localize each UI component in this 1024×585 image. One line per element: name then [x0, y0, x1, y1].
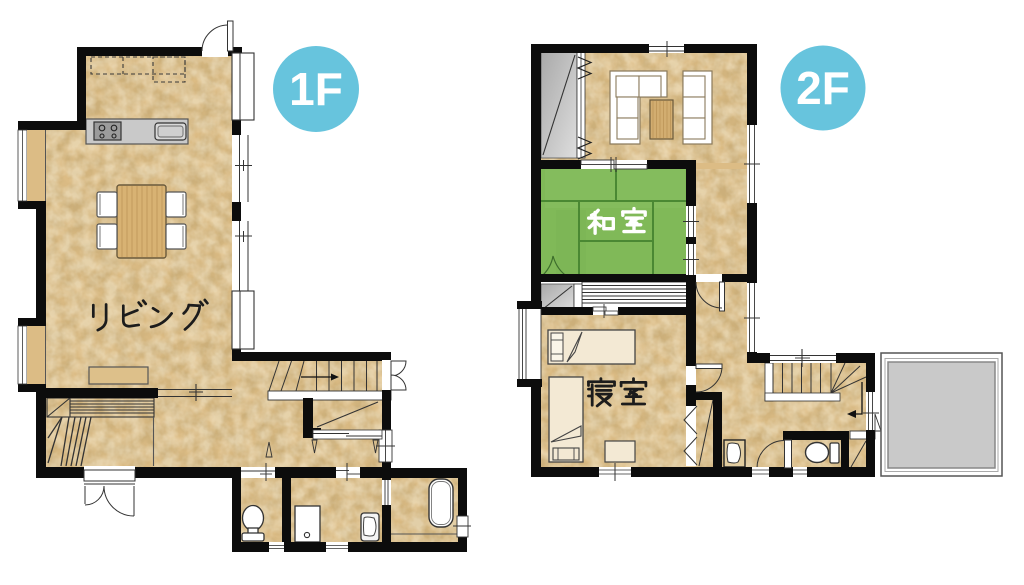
svg-text:2F: 2F — [796, 62, 850, 114]
svg-text:1F: 1F — [289, 63, 343, 115]
